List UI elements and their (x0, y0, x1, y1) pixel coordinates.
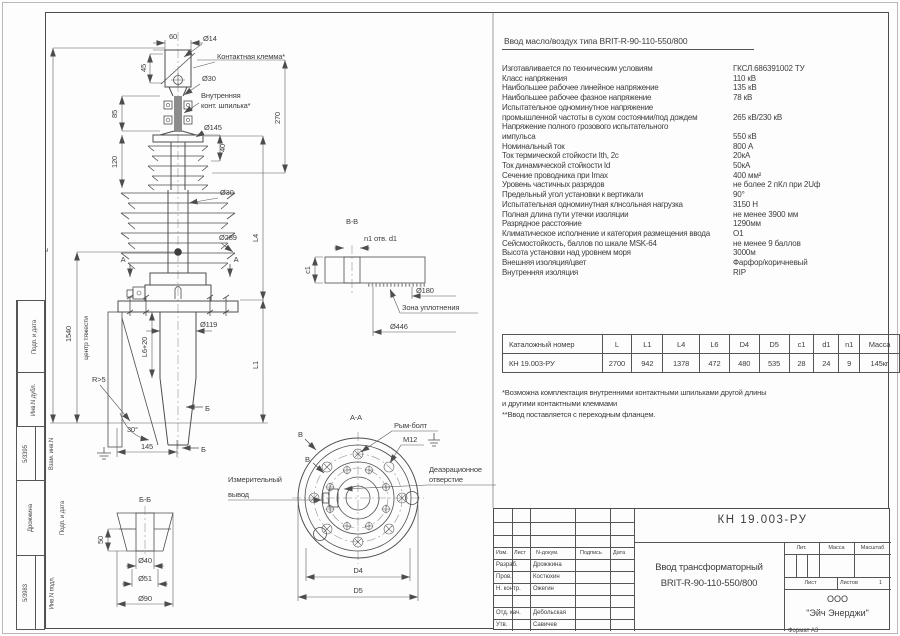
label-m12: М12 (403, 435, 417, 444)
spec-row: Испытательная одноминутная клнсольная на… (502, 200, 884, 210)
grid-line (494, 522, 634, 523)
spec-title: Ввод масло/воздух типа BRIT-R-90-110-550… (502, 36, 754, 50)
table-header-cell: L4 (663, 335, 700, 354)
spec-row: Напряжение полного грозового испытательн… (502, 122, 884, 141)
spec-row: Испытательное одноминутное напряжение пр… (502, 103, 884, 122)
grid-line (494, 619, 634, 620)
drawing-sheet: Подп. и дата Инв.N дубл. 5/3395 Взам. ин… (0, 0, 900, 636)
spec-row: Номинальный ток 800 А (502, 142, 884, 152)
spec-row: Сечение проводника при Imax 400 мм² (502, 171, 884, 181)
outer-bolt-holes (309, 449, 407, 547)
dim-label-dia289: Ø289 (219, 233, 237, 242)
spec-row: Климатическое исполнение и категория раз… (502, 229, 884, 239)
table-header-cell: L (602, 335, 632, 354)
spec-label: Испытательное одноминутное напряжение пр… (502, 103, 733, 122)
grid-line (530, 509, 531, 631)
ground-symbol-aa (428, 433, 440, 446)
stamp-field: 5/3395 Взам. инв.N (16, 426, 45, 481)
spec-label: Высота установки над уровнем моря (502, 248, 733, 258)
table-cell: 472 (700, 354, 730, 373)
ground-symbol (97, 447, 111, 459)
spec-row: Ток динамической стойкости Id 50кА (502, 161, 884, 171)
dim-label-D5: D5 (353, 586, 362, 595)
spec-label: Номинальный ток (502, 142, 733, 152)
spec-label: Сейсмостойкость, баллов по шкале MSK-64 (502, 239, 733, 249)
label-deaeration-2: отверстие (429, 475, 463, 484)
table-header-cell: n1 (839, 335, 860, 354)
table-header-cell: c1 (789, 335, 814, 354)
table-header-cell: D4 (729, 335, 759, 354)
document-number: КН 19.003-РУ (634, 514, 891, 526)
title-block: Изм. Лист N-докум. Подпись Дата Разраб. … (493, 508, 890, 630)
dim-label-R5: R>5 (92, 375, 106, 384)
tb-col-izm: Изм. (496, 547, 508, 559)
tb-name: Дрожжина (533, 559, 562, 571)
spec-value: 550 кВ (733, 132, 757, 142)
table-cell: 2700 (602, 354, 632, 373)
spec-label: Изготавливается по техническим условиям (502, 64, 733, 74)
spec-value: 90° (733, 190, 745, 200)
spec-label: Внешняя изоляция/цвет (502, 258, 733, 268)
table-cell: 28 (789, 354, 814, 373)
table-cell: 1378 (663, 354, 700, 373)
spec-label: Предельный угол установки к вертикали (502, 190, 733, 200)
spec-value: 20кА (733, 151, 750, 161)
tb-name: Савичев (533, 619, 557, 631)
section-bb-gasket-detail: Б-Б 50 Ø40 Ø51 Ø90 (96, 495, 173, 607)
dimension-table-data-row: КН 19.003-РУ 2700 942 1378 472 480 535 2… (503, 354, 900, 373)
table-header-cell: D5 (759, 335, 789, 354)
spec-row: Изготавливается по техническим условиям … (502, 64, 884, 74)
label-measuring-tap-1: Измерительный (228, 475, 282, 484)
stamp-value: 5/3983 (17, 556, 35, 629)
spec-label: Ток динамической стойкости Id (502, 161, 733, 171)
label-inner-stud-2: конт. шпилька* (201, 101, 251, 110)
section-title-aa: А-А (350, 413, 362, 422)
dim-label-270: 270 (273, 112, 282, 124)
spec-value: 78 кВ (733, 93, 752, 103)
table-header-cell: L1 (632, 335, 663, 354)
grid-line (494, 535, 634, 536)
spec-value: О1 (733, 229, 743, 239)
table-header-cell: d1 (814, 335, 839, 354)
dim-label-dia145: Ø145 (204, 123, 222, 132)
grid-line (784, 554, 891, 555)
spec-row: Полная длина пути утечки изоляции не мен… (502, 210, 884, 220)
spec-row: Внешняя изоляция/цвет Фарфор/коричневый (502, 258, 884, 268)
label-eye-bolt: Рым-болт (394, 421, 428, 430)
dim-label-dia90: Ø90 (138, 594, 152, 603)
view-mark-v-1: В (298, 430, 303, 439)
tb-name: Ожегин (533, 583, 554, 595)
spec-value: 135 кВ (733, 83, 757, 93)
dim-label-dia119: Ø119 (200, 320, 217, 329)
stamp-field: 5/3983 Инв.N подл. (16, 555, 45, 630)
table-cell: 535 (759, 354, 789, 373)
section-title-vv: В-В (346, 217, 358, 226)
grid-line (837, 577, 838, 589)
dim-label-50: 50 (96, 536, 105, 544)
table-cell: КН 19.003-РУ (503, 354, 603, 373)
note-line: *Возможна комплектация внутренними конта… (502, 387, 766, 398)
dim-label-L: L (45, 248, 50, 252)
spec-row: Уровень частичных разрядов не более 2 пК… (502, 180, 884, 190)
dim-label-45: 45 (139, 64, 148, 72)
spec-label: Внутренняя изоляция (502, 268, 733, 278)
spec-row: Предельный угол установки к вертикали 90… (502, 190, 884, 200)
stamp-value: Дрожжина (17, 481, 45, 555)
stamp-field: Дрожжина Подп. и дата (16, 480, 45, 556)
dim-label-dia446: Ø446 (390, 322, 408, 331)
dimension-table: Каталожный номер L L1 L4 L6 D4 D5 c1 d1 … (502, 334, 900, 373)
stamp-label-text: Подп. и дата (32, 319, 38, 353)
notes: *Возможна комплектация внутренними конта… (502, 387, 766, 420)
technical-drawing: 60 Ø14 Контактная клемма* 45 Ø30 Внутрен… (45, 12, 505, 630)
spec-value: Фарфор/коричневый (733, 258, 808, 268)
dim-label-dia40: Ø40 (138, 556, 152, 565)
tb-col-ndoc: N-докум. (536, 547, 559, 559)
tb-role: Пров. (496, 571, 512, 583)
dim-label-L1: L1 (251, 361, 260, 369)
dim-label-120: 120 (110, 156, 119, 168)
table-cell: 145кг (860, 354, 900, 373)
tb-role: Разраб. (496, 559, 518, 571)
spec-label: Полная длина пути утечки изоляции (502, 210, 733, 220)
dim-label-L4: L4 (251, 234, 260, 242)
table-cell: 480 (729, 354, 759, 373)
tb-sheets: Листов (840, 577, 858, 589)
tb-name: Дебольская (533, 607, 566, 619)
spec-label: Испытательная одноминутная клнсольная на… (502, 200, 733, 210)
note-line: и другими контактными клеммами (502, 398, 766, 409)
dim-label-dia14: Ø14 (203, 34, 217, 43)
spec-row: Ток термической стойкости Ith, 2с 20кА (502, 151, 884, 161)
table-cell: 9 (839, 354, 860, 373)
spec-row: Класс напряжения 110 кВ (502, 74, 884, 84)
tb-role: Отд. кач. (496, 607, 521, 619)
product-title-2: BRIT-R-90-110-550/800 (634, 578, 784, 590)
section-vv-flange: В-В n1 отв. d1 c1 Ø180 Зона уплотнения Ø… (303, 217, 478, 336)
grid-line (494, 571, 634, 572)
label-contact-clamp: Контактная клемма* (217, 52, 285, 61)
spec-row: Сейсмостойкость, баллов по шкале MSK-64 … (502, 239, 884, 249)
spec-value: 50кА (733, 161, 750, 171)
grid-line (494, 595, 634, 596)
tb-col-podpis: Подпись (580, 547, 602, 559)
tb-scale: Масштаб (854, 542, 891, 554)
table-cell: 24 (814, 354, 839, 373)
grid-line (784, 589, 891, 590)
section-mark-B-upper: Б (205, 404, 210, 413)
section-title-bb: Б-Б (139, 495, 151, 504)
format-label: Формат А3 (788, 628, 818, 634)
spec-value: RIP (733, 268, 746, 278)
label-center-of-gravity: центр тяжести (83, 316, 90, 360)
dim-label-145: 145 (141, 442, 153, 451)
spec-label: Сечение проводника при Imax (502, 171, 733, 181)
grid-line (796, 554, 797, 577)
stamp-label-text: Инв.N дубл. (31, 383, 37, 415)
dim-label-dia180: Ø180 (416, 286, 434, 295)
spec-value: 1290мм (733, 219, 761, 229)
main-view-dimensions: 60 Ø14 Контактная клемма* 45 Ø30 Внутрен… (45, 32, 285, 457)
label-deaeration-1: Деаэрационное (429, 465, 482, 474)
spec-label: Ток термической стойкости Ith, 2с (502, 151, 733, 161)
tb-col-list: Лист (514, 547, 526, 559)
section-mark-A-right: А (234, 255, 239, 264)
view-aa-flange-top: А-А (228, 413, 496, 601)
stamp-field: Подп. и дата (16, 300, 45, 373)
spec-value: 110 кВ (733, 74, 756, 84)
label-inner-stud-1: Внутренняя (201, 91, 241, 100)
spec-value: 400 мм² (733, 171, 761, 181)
stamp-field: Инв.N дубл. (16, 372, 45, 427)
spec-value: ГКСЛ.686391002 ТУ (733, 64, 805, 74)
spec-value: не менее 3900 мм (733, 210, 798, 220)
spec-row: Наибольшее рабочее линейное напряжение 1… (502, 83, 884, 93)
section-mark-A-left: А (121, 255, 126, 264)
spec-row: Наибольшее рабочее фазное напряжение 78 … (502, 93, 884, 103)
stamp-value-text: 5/3983 (23, 584, 29, 602)
spec-label: Наибольшее рабочее линейное напряжение (502, 83, 733, 93)
view-mark-v-2: В (305, 455, 310, 464)
tb-role: Утв. (496, 619, 507, 631)
tb-sheets-value: 1 (879, 577, 882, 589)
dim-label-dia30-top: Ø30 (202, 74, 216, 83)
grid-line (807, 554, 808, 577)
spec-value: 265 кВ/230 кВ (733, 113, 782, 123)
spec-label: Климатическое исполнение и категория раз… (502, 229, 733, 239)
stamp-value-text: 5/3395 (23, 445, 29, 463)
product-title-1: Ввод трансформаторный (634, 562, 784, 574)
spec-list: Изготавливается по техническим условиям … (502, 64, 884, 277)
table-cell: 942 (632, 354, 663, 373)
stamp-value: 5/3395 (17, 427, 35, 480)
label-seal-zone: Зона уплотнения (402, 303, 459, 312)
dim-label-L6: L6+20 (140, 337, 149, 357)
dim-label-40: 40 (218, 144, 227, 152)
spec-label: Напряжение полного грозового испытательн… (502, 122, 733, 141)
section-mark-B-lower: Б (201, 445, 206, 454)
spec-value: 800 А (733, 142, 753, 152)
dim-label-1540: 1540 (64, 326, 73, 342)
spec-label: Наибольшее рабочее фазное напряжение (502, 93, 733, 103)
tb-role: Н. контр. (496, 583, 521, 595)
table-header-cell: Масса (860, 335, 900, 354)
tb-col-data: Дата (613, 547, 625, 559)
dim-label-dia30-mid: Ø30 (220, 188, 234, 197)
note-line: **Ввод поставляется с переходным фланцем… (502, 409, 766, 420)
dim-label-85: 85 (110, 110, 119, 118)
dimension-table-header-row: Каталожный номер L L1 L4 L6 D4 D5 c1 d1 … (503, 335, 900, 354)
spec-value: не более 2 пКл при 2Uф (733, 180, 820, 190)
spec-panel: Ввод масло/воздух типа BRIT-R-90-110-550… (502, 36, 884, 277)
dim-label-c1: c1 (303, 266, 312, 274)
stamp-value-text: Дрожжина (28, 504, 34, 532)
label-measuring-tap-2: вывод (228, 490, 250, 499)
tb-lit: Лит. (784, 542, 819, 554)
table-header-cell: Каталожный номер (503, 335, 603, 354)
spec-label: Разрядное расстояние (502, 219, 733, 229)
spec-value: не менее 9 баллов (733, 239, 801, 249)
dim-label-dia51: Ø51 (138, 574, 152, 583)
company-name-2: "Эйч Энерджи" (784, 607, 891, 619)
label-n1-holes-d1: n1 отв. d1 (364, 234, 397, 243)
spec-value: 3000м (733, 248, 756, 258)
tb-sheet: Лист (784, 577, 837, 589)
spec-value: 3150 Н (733, 200, 758, 210)
spec-row: Разрядное расстояние 1290мм (502, 219, 884, 229)
spec-label: Уровень частичных разрядов (502, 180, 733, 190)
grid-line (575, 509, 576, 631)
tb-name: Костюхин (533, 571, 560, 583)
grid-line (610, 509, 611, 631)
table-header-cell: L6 (700, 335, 730, 354)
tb-mass: Масса (819, 542, 854, 554)
spec-label: Класс напряжения (502, 74, 733, 84)
dim-label-60: 60 (169, 32, 177, 41)
spec-row: Высота установки над уровнем моря 3000м (502, 248, 884, 258)
company-name-1: ООО (784, 593, 891, 605)
center-of-gravity-dot (174, 248, 182, 256)
spec-row: Внутренняя изоляция RIP (502, 268, 884, 278)
dim-label-D4: D4 (353, 566, 362, 575)
